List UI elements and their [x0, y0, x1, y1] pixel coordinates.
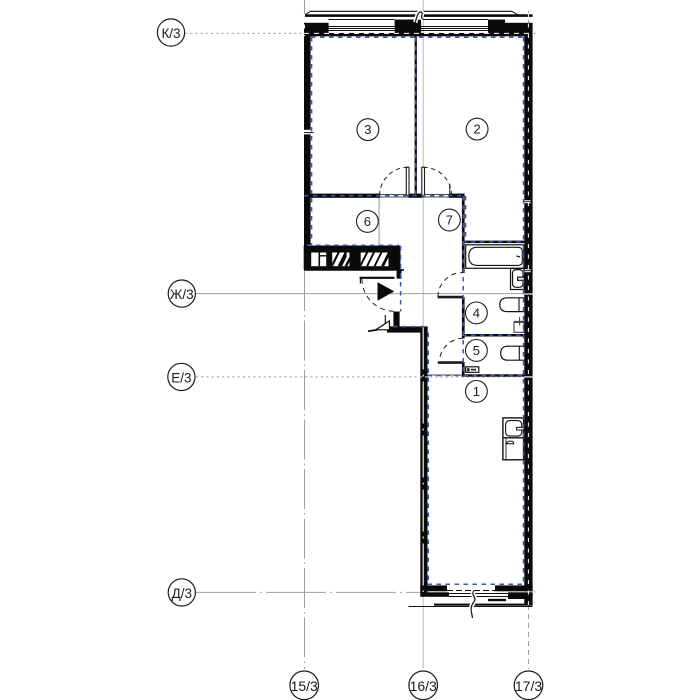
svg-text:4: 4: [473, 306, 480, 321]
svg-text:16/3: 16/3: [410, 678, 437, 694]
svg-text:Ж/3: Ж/3: [170, 287, 194, 302]
svg-text:5: 5: [473, 343, 480, 358]
svg-text:17/3: 17/3: [515, 678, 542, 694]
svg-text:Е/3: Е/3: [171, 370, 191, 385]
svg-text:6: 6: [364, 214, 371, 229]
svg-text:3: 3: [364, 122, 371, 137]
svg-text:7: 7: [446, 213, 453, 228]
svg-text:15/3: 15/3: [291, 678, 318, 694]
svg-text:1: 1: [473, 384, 480, 399]
svg-text:Д/3: Д/3: [172, 586, 192, 601]
svg-text:К/3: К/3: [161, 26, 180, 41]
svg-text:2: 2: [473, 122, 480, 137]
